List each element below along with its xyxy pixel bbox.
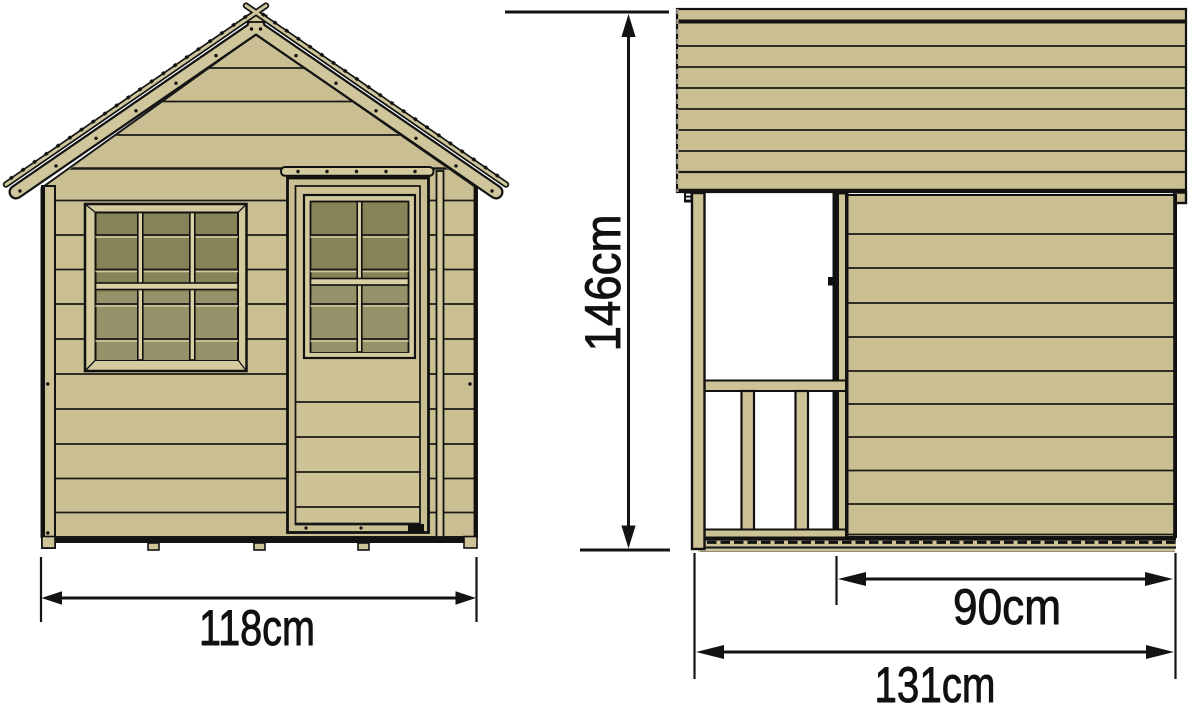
svg-text:131cm: 131cm [875, 657, 996, 712]
svg-text:146cm: 146cm [575, 215, 631, 352]
svg-text:118cm: 118cm [199, 600, 315, 656]
svg-text:90cm: 90cm [953, 579, 1061, 635]
